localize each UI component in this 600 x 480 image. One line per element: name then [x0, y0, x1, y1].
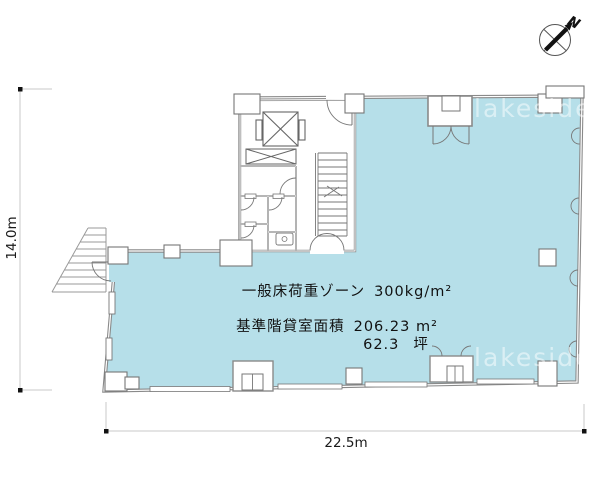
- rental-area-label: 基準階貸室面積206.23 m²: [236, 318, 438, 335]
- floor-plan-page: 14.0m 22.5m: [0, 0, 600, 480]
- dimension-left: [20, 89, 52, 390]
- dim-dot: [18, 87, 23, 92]
- dimension-bottom: [106, 402, 584, 431]
- tsubo-label: 62.3坪: [363, 336, 429, 353]
- dim-dot: [582, 429, 587, 434]
- floor-plan-drawing: 14.0m 22.5m: [0, 0, 600, 480]
- dim-dot: [104, 429, 109, 434]
- watermark-text: lakeside: [474, 94, 592, 123]
- watermark-text: lakeside: [474, 343, 592, 372]
- dim-dot: [18, 388, 23, 393]
- elevator-icon: [256, 112, 305, 146]
- shaft-icon: [246, 149, 296, 164]
- floor-load-label: 一般床荷重ゾーン300kg/m²: [242, 283, 452, 300]
- bottom-annex-left: [233, 361, 273, 391]
- compass-icon: N: [540, 13, 583, 55]
- width-dimension-label: 22.5m: [324, 435, 367, 451]
- exterior-staircase: [52, 228, 106, 292]
- height-dimension-label: 14.0m: [4, 216, 20, 259]
